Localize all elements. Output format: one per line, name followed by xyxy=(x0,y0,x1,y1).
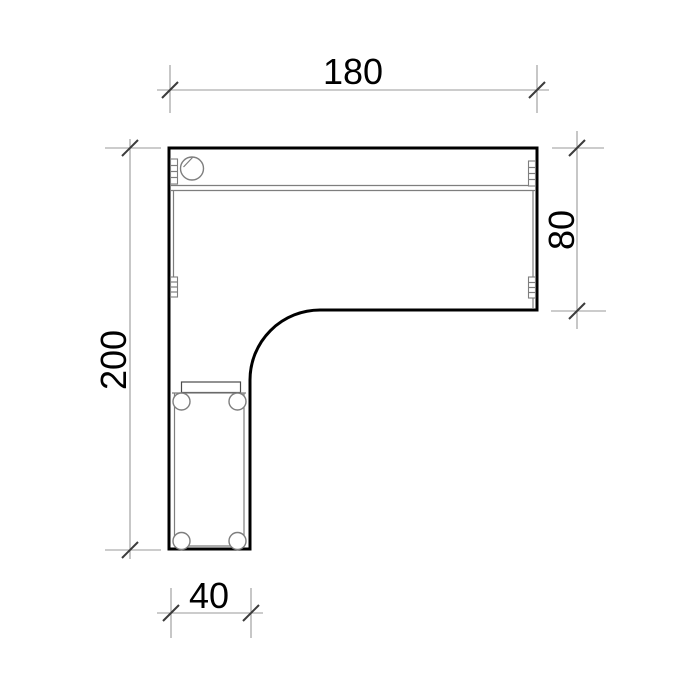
dimension-label-right: 80 xyxy=(541,210,582,250)
connector-bracket-mid-left xyxy=(171,277,178,297)
connector-bracket-mid-right xyxy=(529,277,536,298)
screw-hole xyxy=(173,533,190,550)
dimension-top: 180 xyxy=(157,51,549,113)
dimension-right: 80 xyxy=(541,131,606,329)
dimension-bottom: 40 xyxy=(157,575,263,638)
grommet-hole xyxy=(181,157,204,180)
connector-bracket-top-left xyxy=(171,159,178,184)
dimension-label-bottom: 40 xyxy=(189,575,229,616)
desk-technical-drawing: 180 80 200 40 xyxy=(0,0,700,700)
screw-hole xyxy=(229,533,246,550)
dimension-label-left: 200 xyxy=(93,330,134,390)
connector-bracket-top-right xyxy=(529,161,536,186)
dimension-label-top: 180 xyxy=(323,51,383,92)
desk-outline xyxy=(169,148,537,549)
screw-hole xyxy=(173,393,190,410)
cable-tray-rect xyxy=(182,382,241,393)
dimension-left: 200 xyxy=(93,139,161,559)
screw-hole xyxy=(229,393,246,410)
